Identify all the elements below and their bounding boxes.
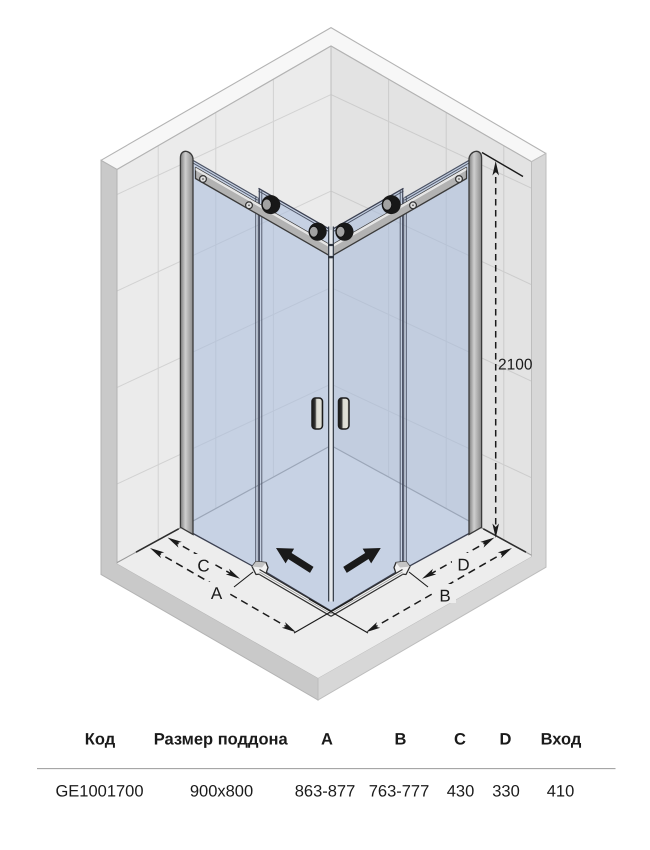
- svg-text:В: В: [395, 731, 407, 749]
- svg-text:430: 430: [447, 783, 475, 801]
- svg-text:D: D: [500, 731, 512, 749]
- svg-text:GE1001700: GE1001700: [55, 783, 143, 801]
- svg-text:A: A: [211, 584, 223, 603]
- svg-text:863-877: 863-877: [295, 783, 356, 801]
- svg-text:Вход: Вход: [541, 731, 582, 749]
- svg-text:410: 410: [547, 783, 575, 801]
- svg-text:D: D: [457, 556, 469, 575]
- svg-text:Код: Код: [85, 731, 116, 749]
- svg-text:С: С: [454, 731, 466, 749]
- svg-text:763-777: 763-777: [369, 783, 430, 801]
- svg-text:2100: 2100: [498, 357, 533, 374]
- svg-text:900x800: 900x800: [190, 783, 253, 801]
- svg-text:C: C: [197, 557, 209, 576]
- svg-text:А: А: [321, 731, 333, 749]
- svg-text:B: B: [439, 587, 450, 606]
- svg-text:330: 330: [492, 783, 520, 801]
- svg-text:Размер поддона: Размер поддона: [154, 731, 289, 749]
